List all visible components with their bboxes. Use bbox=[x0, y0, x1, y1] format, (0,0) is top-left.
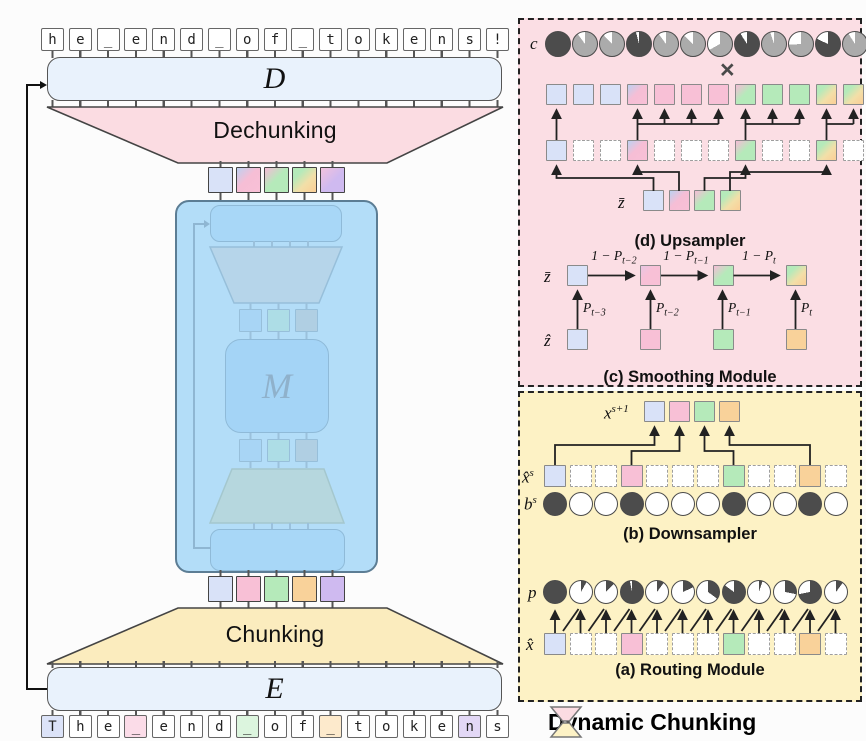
chunk-vector-square-purple_pink bbox=[320, 167, 345, 193]
decoder-block: D bbox=[47, 57, 502, 101]
token-cell: o bbox=[264, 715, 287, 738]
chunk-vector-square-green_pink bbox=[264, 167, 289, 193]
dechunking-label: Dechunking bbox=[47, 117, 503, 144]
top-token-row: he_end_of_tokens! bbox=[41, 28, 509, 51]
token-cell: o bbox=[347, 28, 370, 51]
token-cell: n bbox=[458, 715, 481, 738]
chunk-row bbox=[208, 576, 345, 602]
decoder-label: D bbox=[264, 62, 286, 96]
chunking-label: Chunking bbox=[47, 621, 503, 648]
inner-chunking-trapezoid bbox=[210, 468, 344, 524]
inner-encoder-block bbox=[210, 529, 345, 571]
inner-main-block: M bbox=[225, 339, 329, 433]
nested-hnet-ghost: M bbox=[177, 202, 376, 571]
token-cell: s bbox=[458, 28, 481, 51]
inner-decoder-block bbox=[210, 205, 342, 242]
inner-chunk-square bbox=[295, 309, 318, 332]
encoder-block: E bbox=[47, 667, 502, 711]
token-cell: n bbox=[430, 28, 453, 51]
token-cell: f bbox=[291, 715, 314, 738]
inner-chunk-square bbox=[239, 309, 262, 332]
token-cell: e bbox=[69, 28, 92, 51]
token-cell: h bbox=[69, 715, 92, 738]
chunk-vector-square-green_orange bbox=[292, 167, 317, 193]
token-cell: _ bbox=[319, 715, 342, 738]
token-cell: _ bbox=[97, 28, 120, 51]
dechunking-detail-panel: c × z̄ (d) Upsampler z̄ ẑ 1 − Pt−2 1 − P… bbox=[518, 18, 862, 387]
inner-chunk-row bbox=[239, 439, 318, 462]
token-cell: o bbox=[375, 715, 398, 738]
inner-chunk-square bbox=[295, 439, 318, 462]
chunk-vector-square-orange bbox=[292, 576, 317, 602]
hnet-architecture-figure: he_end_of_tokens! D Dechunking M bbox=[0, 0, 866, 741]
inner-chunk-square bbox=[239, 439, 262, 462]
token-cell: k bbox=[375, 28, 398, 51]
skip-line bbox=[26, 84, 28, 690]
token-cell: h bbox=[41, 28, 64, 51]
token-cell: _ bbox=[236, 715, 259, 738]
smoothed-chunk-row bbox=[208, 167, 345, 193]
legend: Dynamic Chunking bbox=[548, 703, 866, 741]
skip-line bbox=[26, 688, 47, 690]
token-cell: k bbox=[403, 715, 426, 738]
token-cell: d bbox=[208, 715, 231, 738]
chunk-vector-square-blue bbox=[208, 576, 233, 602]
token-cell: _ bbox=[208, 28, 231, 51]
inner-dechunking-trapezoid bbox=[210, 246, 342, 304]
token-cell: e bbox=[97, 715, 120, 738]
bottom-token-row: The_end_of_tokens bbox=[41, 715, 509, 738]
inner-skip-line bbox=[193, 547, 211, 549]
inner-main-label: M bbox=[262, 365, 292, 407]
token-cell: e bbox=[430, 715, 453, 738]
token-cell: e bbox=[124, 28, 147, 51]
encoder-label: E bbox=[265, 672, 283, 706]
token-cell: e bbox=[403, 28, 426, 51]
inner-chunk-square bbox=[267, 439, 290, 462]
token-cell: n bbox=[152, 28, 175, 51]
chunk-vector-square-green bbox=[264, 576, 289, 602]
token-cell: t bbox=[319, 28, 342, 51]
token-cell: T bbox=[41, 715, 64, 738]
skip-line bbox=[26, 84, 41, 86]
token-cell: _ bbox=[291, 28, 314, 51]
inner-skip-line bbox=[193, 223, 195, 549]
upsampler-arrows bbox=[520, 20, 864, 389]
main-network-box: M bbox=[175, 200, 378, 573]
downsampler-arrows bbox=[520, 393, 864, 704]
token-cell: s bbox=[486, 715, 509, 738]
token-cell: _ bbox=[124, 715, 147, 738]
chunking-detail-panel: xs+1 x̂s bs (b) Downsampler p x̂ (a) Rou… bbox=[518, 391, 862, 702]
chunk-vector-square-pink_blue bbox=[236, 167, 261, 193]
chunk-vector-square-blue bbox=[208, 167, 233, 193]
dynamic-chunking-hourglass-icon bbox=[548, 704, 584, 740]
token-cell: o bbox=[236, 28, 259, 51]
token-cell: n bbox=[180, 715, 203, 738]
token-cell: f bbox=[264, 28, 287, 51]
inner-chunk-square bbox=[267, 309, 290, 332]
token-cell: e bbox=[152, 715, 175, 738]
token-cell: d bbox=[180, 28, 203, 51]
skip-arrowhead-icon bbox=[40, 81, 47, 89]
chunk-vector-square-purple bbox=[320, 576, 345, 602]
token-cell: t bbox=[347, 715, 370, 738]
inner-skip-arrowhead-icon bbox=[204, 220, 210, 228]
chunk-vector-square-pink bbox=[236, 576, 261, 602]
tick-row bbox=[239, 332, 318, 339]
token-cell: ! bbox=[486, 28, 509, 51]
inner-chunk-row bbox=[239, 309, 318, 332]
